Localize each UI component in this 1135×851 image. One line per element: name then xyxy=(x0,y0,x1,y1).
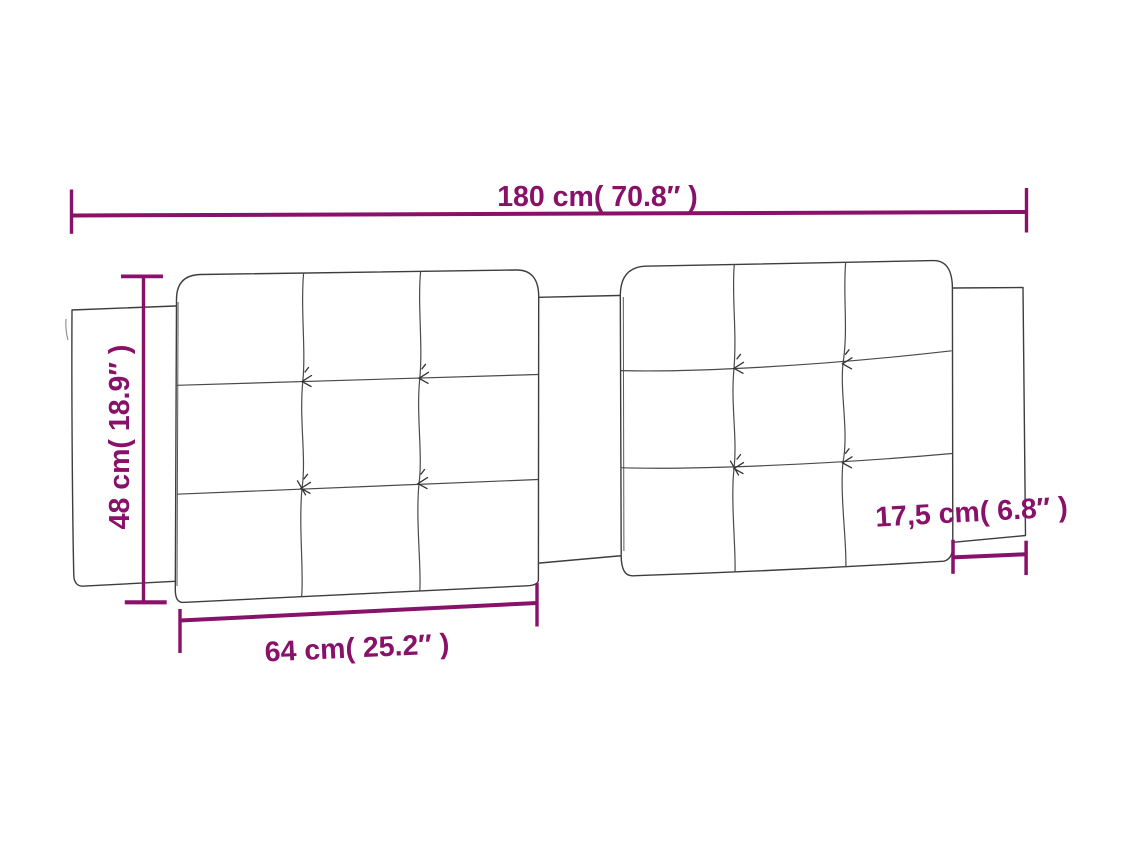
svg-text:48 cm( 18.9″ ): 48 cm( 18.9″ ) xyxy=(104,345,136,530)
svg-text:180 cm( 70.8″ ): 180 cm( 70.8″ ) xyxy=(497,181,698,213)
